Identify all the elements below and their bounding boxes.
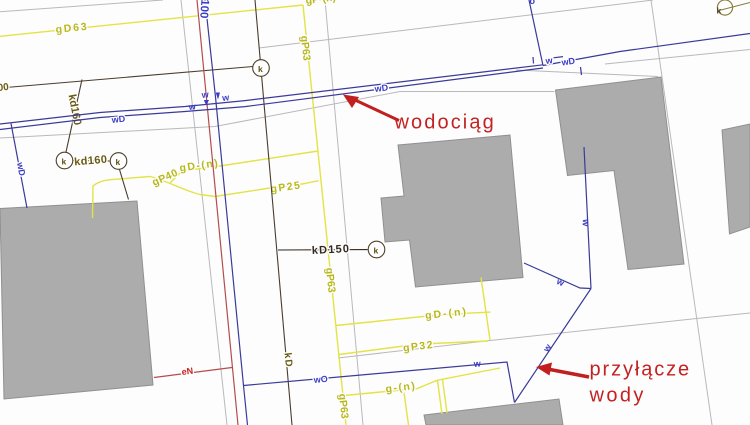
svg-text:kD150: kD150	[312, 243, 351, 257]
svg-text:k: k	[258, 64, 263, 74]
svg-text:wD: wD	[110, 114, 126, 126]
svg-text:wO: wO	[312, 374, 328, 385]
svg-text:kD: kD	[282, 352, 295, 368]
svg-text:k: k	[116, 157, 121, 167]
svg-text:k: k	[62, 157, 67, 167]
svg-text:wody: wody	[589, 385, 646, 407]
svg-text:k: k	[717, 6, 722, 16]
svg-text:wD: wD	[373, 82, 389, 94]
svg-text:wD: wD	[560, 56, 576, 68]
svg-text:przyłącze: przyłącze	[590, 359, 692, 381]
svg-text:wodociąg: wodociąg	[394, 112, 496, 134]
svg-text:eN: eN	[181, 366, 194, 377]
svg-text:00: 00	[0, 82, 10, 94]
svg-text:o: o	[530, 0, 536, 6]
svg-text:k: k	[374, 246, 379, 256]
svg-text:100: 100	[197, 0, 210, 19]
